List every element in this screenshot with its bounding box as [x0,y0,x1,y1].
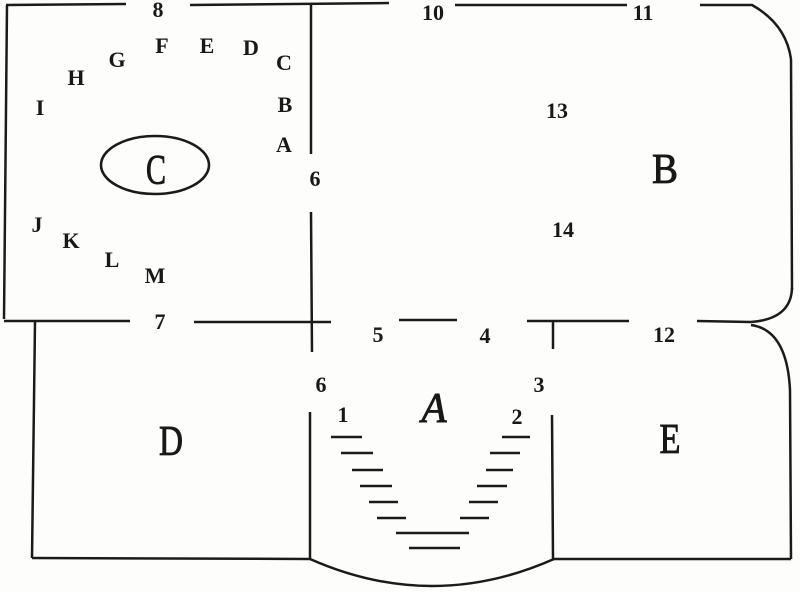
svg-text:3: 3 [534,372,545,397]
svg-text:6: 6 [316,372,327,397]
svg-text:E: E [660,417,681,463]
svg-text:8: 8 [153,0,164,22]
svg-text:E: E [200,33,215,58]
svg-text:2: 2 [512,404,523,429]
svg-text:14: 14 [552,217,574,242]
svg-text:K: K [62,228,79,253]
svg-text:M: M [145,263,166,288]
svg-text:B: B [278,92,293,117]
svg-text:C: C [146,148,166,194]
svg-text:H: H [67,65,84,90]
svg-text:A: A [276,132,292,157]
svg-text:F: F [155,33,168,58]
svg-text:12: 12 [653,322,675,347]
svg-text:6: 6 [310,166,321,191]
svg-text:A: A [419,386,447,432]
svg-text:13: 13 [546,98,568,123]
svg-text:10: 10 [422,0,444,25]
svg-text:D: D [159,419,183,465]
svg-text:D: D [243,35,259,60]
svg-text:L: L [105,247,120,272]
svg-text:B: B [652,147,678,193]
svg-text:I: I [36,95,45,120]
svg-text:J: J [32,212,43,237]
svg-text:C: C [276,50,292,75]
svg-text:11: 11 [633,0,654,25]
svg-text:G: G [108,47,125,72]
svg-text:4: 4 [480,323,491,348]
svg-text:7: 7 [155,309,166,334]
svg-text:1: 1 [338,402,349,427]
svg-text:5: 5 [373,322,384,347]
